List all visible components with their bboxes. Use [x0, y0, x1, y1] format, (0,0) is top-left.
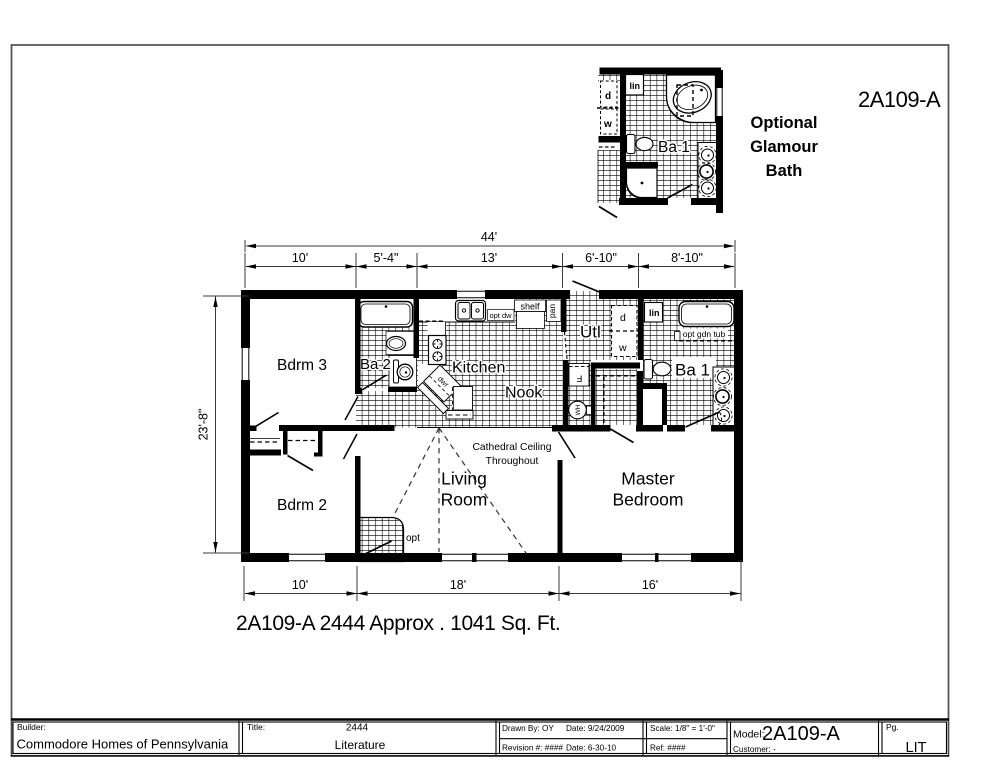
svg-text:Commodore Homes of Pennsylvani: Commodore Homes of Pennsylvania — [17, 737, 229, 752]
svg-text:Bdrm 2: Bdrm 2 — [277, 497, 327, 514]
svg-text:d: d — [605, 91, 611, 102]
svg-text:Optional: Optional — [751, 114, 818, 132]
svg-text:Ba 2: Ba 2 — [360, 356, 391, 373]
svg-text:2A109-A 2444 Approx . 1041 Sq: 2A109-A 2444 Approx . 1041 Sq. Ft. — [236, 612, 560, 635]
svg-text:shelf: shelf — [520, 302, 540, 312]
svg-text:w: w — [618, 342, 627, 354]
svg-text:Pg.: Pg. — [886, 722, 899, 732]
svg-text:Glamour: Glamour — [750, 138, 818, 156]
svg-text:2444: 2444 — [346, 723, 369, 734]
svg-text:Builder:: Builder: — [17, 722, 46, 732]
svg-text:Date: 6-30-10: Date: 6-30-10 — [566, 744, 617, 753]
svg-text:8'-10": 8'-10" — [671, 251, 703, 265]
svg-text:opt dw: opt dw — [489, 311, 512, 320]
svg-text:Revision #: ####: Revision #: #### — [502, 744, 563, 753]
svg-text:F: F — [576, 373, 582, 384]
svg-text:Master: Master — [621, 469, 675, 489]
svg-text:w: w — [603, 119, 612, 130]
svg-text:Date: 9/24/2009: Date: 9/24/2009 — [566, 724, 625, 733]
svg-text:opt: opt — [406, 533, 420, 544]
svg-text:Cathedral Ceiling: Cathedral Ceiling — [473, 442, 552, 453]
svg-text:Nook: Nook — [505, 385, 543, 402]
svg-text:Ref: ####: Ref: #### — [650, 744, 686, 753]
svg-text:5'-4": 5'-4" — [374, 251, 399, 265]
svg-text:lin: lin — [649, 308, 660, 318]
svg-text:Customer: -: Customer: - — [733, 745, 776, 754]
svg-text:Utl: Utl — [580, 323, 601, 342]
svg-text:Room: Room — [441, 490, 488, 510]
svg-text:13': 13' — [481, 251, 497, 265]
svg-text:WH: WH — [575, 404, 582, 415]
svg-text:23'-8": 23'-8" — [197, 409, 211, 441]
svg-text:LIT: LIT — [906, 740, 927, 756]
svg-text:Bedroom: Bedroom — [612, 490, 683, 510]
svg-text:opt gdn tub: opt gdn tub — [683, 329, 726, 339]
svg-text:pan: pan — [547, 304, 557, 318]
svg-text:44': 44' — [481, 230, 497, 244]
svg-text:Literature: Literature — [335, 738, 386, 752]
svg-text:16': 16' — [642, 578, 658, 592]
svg-text:18': 18' — [450, 578, 466, 592]
svg-text:d: d — [620, 312, 626, 324]
svg-text:6'-10": 6'-10" — [585, 251, 617, 265]
svg-text:Ba 1: Ba 1 — [658, 139, 690, 156]
svg-text:Model:: Model: — [733, 729, 765, 741]
svg-text:Throughout: Throughout — [486, 456, 539, 467]
svg-text:Scale: 1/8" = 1'-0": Scale: 1/8" = 1'-0" — [650, 724, 715, 733]
svg-text:lin: lin — [630, 81, 641, 91]
svg-text:2A109-A: 2A109-A — [762, 723, 840, 745]
svg-text:Kitchen: Kitchen — [452, 360, 505, 377]
svg-text:10': 10' — [292, 578, 308, 592]
svg-text:10': 10' — [292, 251, 308, 265]
svg-text:Living: Living — [441, 469, 487, 489]
svg-text:2A109-A: 2A109-A — [858, 87, 941, 112]
svg-text:Drawn By: OY: Drawn By: OY — [502, 724, 554, 733]
svg-text:Ba 1: Ba 1 — [675, 361, 710, 380]
svg-text:Bath: Bath — [766, 162, 803, 180]
svg-text:Title:: Title: — [247, 722, 265, 732]
svg-text:Bdrm 3: Bdrm 3 — [277, 357, 327, 374]
